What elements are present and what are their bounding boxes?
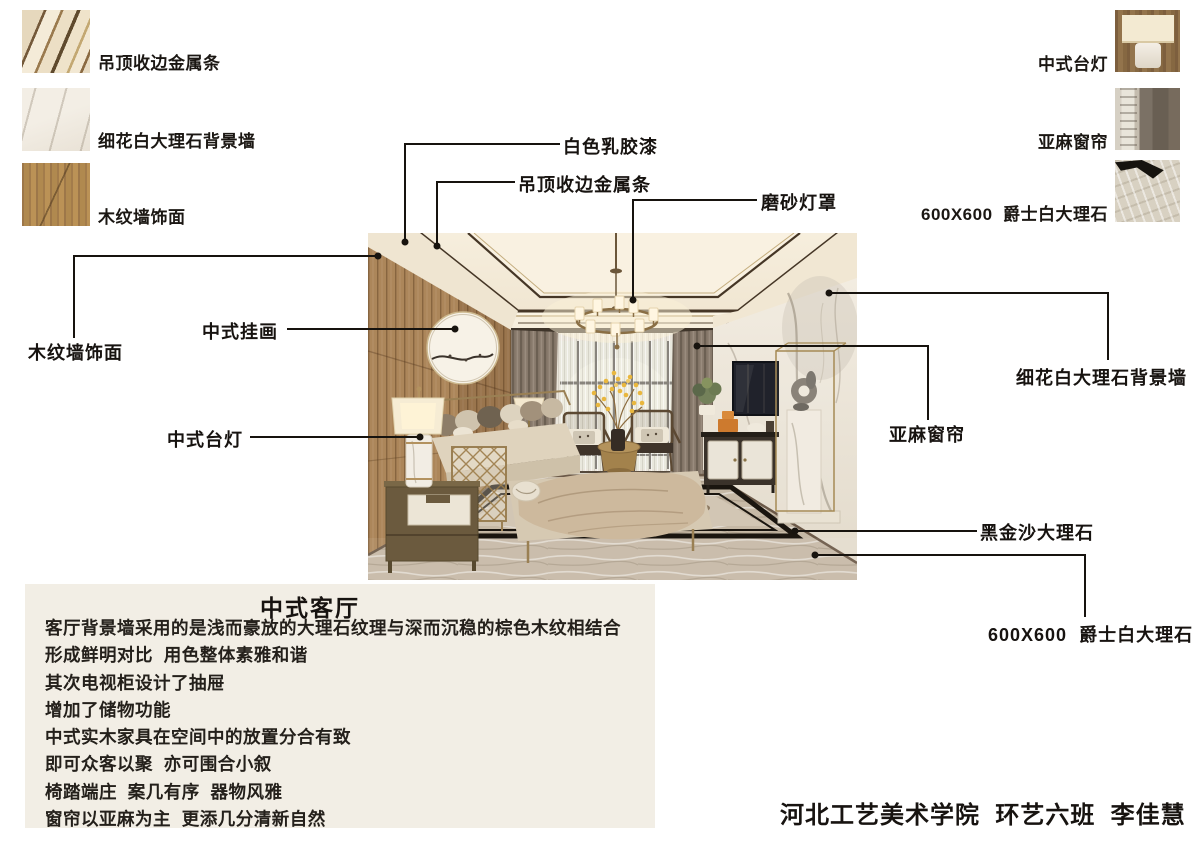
swatch-jazz-white-tile-image: [1115, 160, 1180, 222]
swatch-table-lamp-image: [1115, 10, 1180, 72]
description-line: 客厅背景墙采用的是浅而豪放的大理石纹理与深而沉稳的棕色木纹相结合: [45, 615, 645, 642]
description-line: 即可众客以聚 亦可围合小叙: [45, 751, 645, 778]
side-cabinet: [384, 481, 480, 573]
swatch-white-marble-image: [22, 88, 90, 151]
description-line: 形成鲜明对比 用色整体素雅和谐: [45, 642, 645, 669]
material-label-wood-panel: 木纹墙饰面: [98, 203, 186, 228]
material-label-table-lamp: 中式台灯: [908, 50, 1108, 75]
description-box: 中式客厅 客厅背景墙采用的是浅而豪放的大理石纹理与深而沉稳的棕色木纹相结合 形成…: [25, 584, 655, 828]
callout-floor-tile: 600X600 爵士白大理石: [988, 621, 1193, 647]
swatch-ceiling-metal-strip-image: [22, 10, 90, 73]
moon-painting: [427, 312, 499, 384]
material-label-white-marble: 细花白大理石背景墙: [98, 127, 256, 152]
description-line: 其次电视柜设计了抽屉: [45, 670, 645, 697]
callout-white-paint: 白色乳胶漆: [563, 133, 658, 159]
signature: 河北工艺美术学院 环艺六班 李佳慧: [780, 795, 1180, 830]
living-room-render: [368, 233, 857, 580]
swatch-wood-panel-image: [22, 163, 90, 226]
callout-wood-wall: 木纹墙饰面: [28, 339, 123, 365]
leader-line-marble-wall: [829, 293, 1108, 360]
callout-ceiling-metal: 吊顶收边金属条: [518, 171, 651, 197]
render-image: [368, 233, 857, 580]
callout-lamp: 中式台灯: [167, 426, 243, 452]
description-line: 增加了储物功能: [45, 697, 645, 724]
material-label-jazz-white-tile: 600X600 爵士白大理石: [848, 200, 1108, 225]
callout-painting: 中式挂画: [202, 318, 278, 344]
tv: [733, 362, 778, 415]
callout-curtain: 亚麻窗帘: [889, 421, 965, 447]
callout-marble-wall: 细花白大理石背景墙: [1016, 364, 1187, 390]
description-line: 窗帘以亚麻为主 更添几分清新自然: [45, 806, 645, 833]
swatch-linen-curtain-image: [1115, 88, 1180, 150]
design-board: 吊顶收边金属条 细花白大理石背景墙 木纹墙饰面 中式台灯 亚麻窗帘 600X60…: [0, 0, 1200, 849]
description-text: 客厅背景墙采用的是浅而豪放的大理石纹理与深而沉稳的棕色木纹相结合 形成鲜明对比 …: [45, 615, 645, 833]
callout-black-marble: 黑金沙大理石: [980, 519, 1094, 545]
callout-frosted-shade: 磨砂灯罩: [761, 189, 837, 215]
description-line: 中式实木家具在空间中的放置分合有致: [45, 724, 645, 751]
material-label-ceiling-metal-strip: 吊顶收边金属条: [98, 49, 221, 74]
material-label-linen-curtain: 亚麻窗帘: [908, 128, 1108, 153]
description-line: 椅踏端庄 案几有序 器物风雅: [45, 779, 645, 806]
